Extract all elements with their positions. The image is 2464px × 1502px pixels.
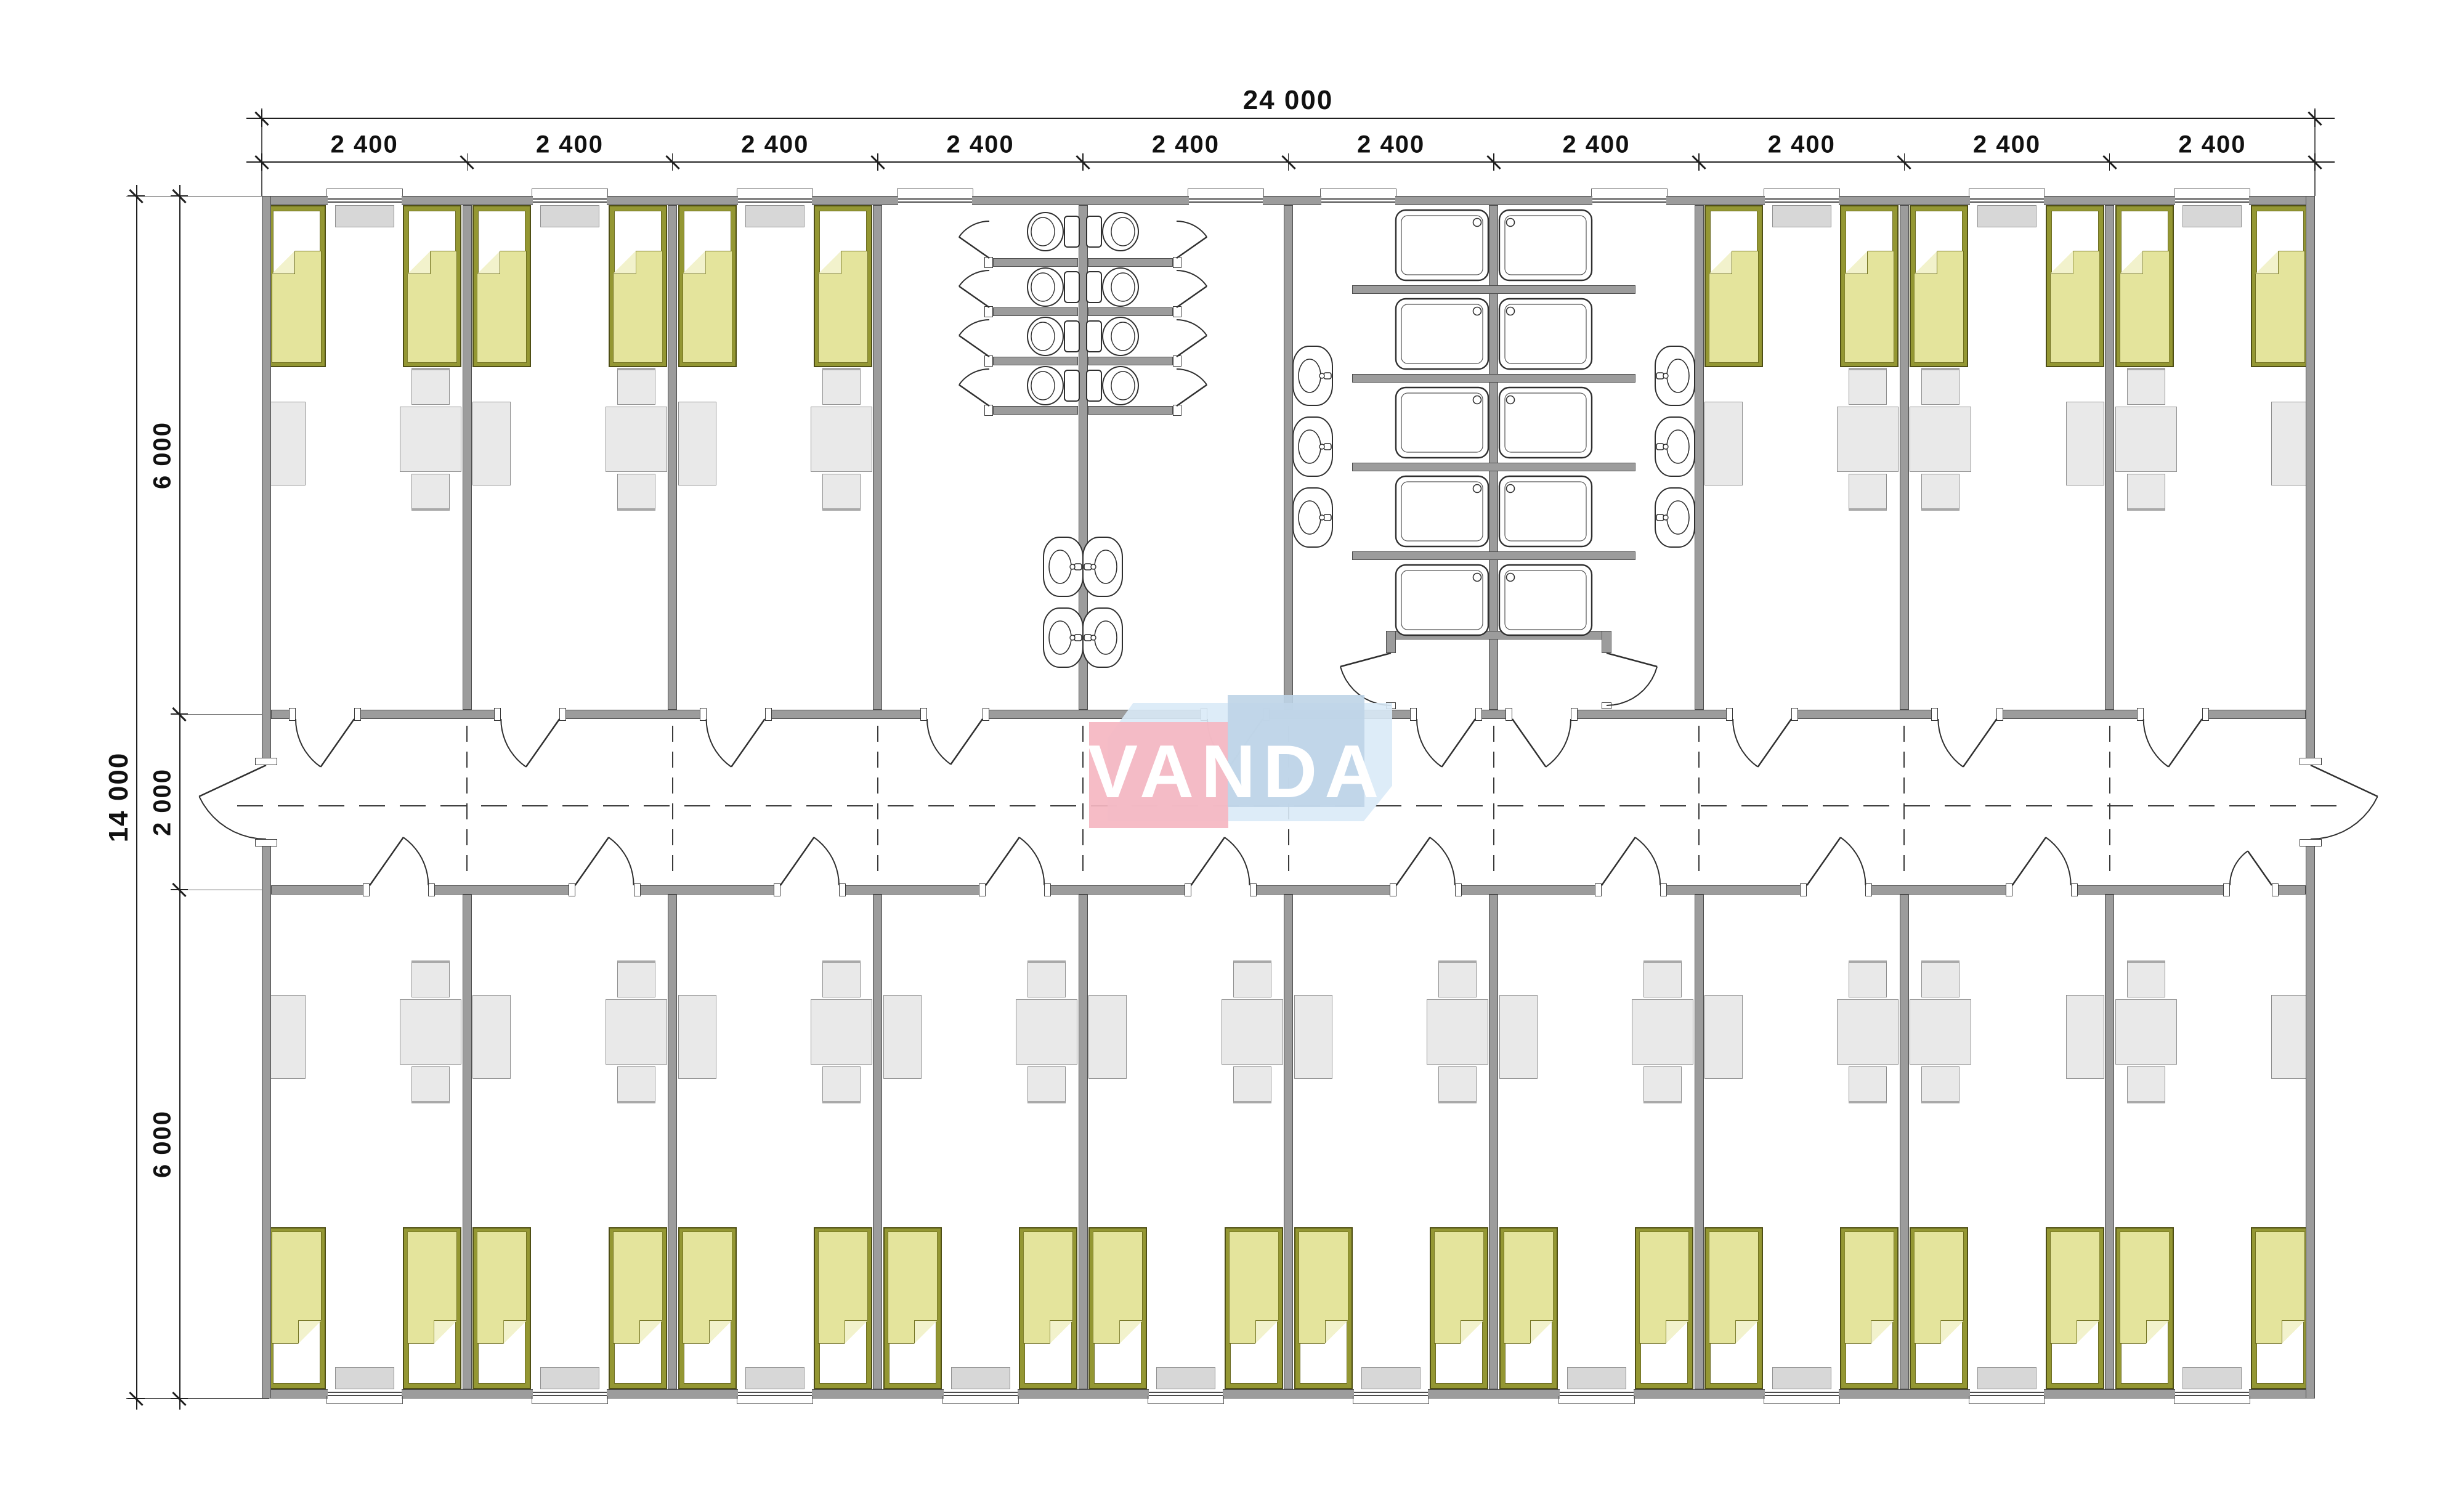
shower-drain-left-1 xyxy=(1473,307,1481,315)
bedroom-top-door-0-leaf xyxy=(321,719,354,767)
toilet-stall-door-right-2-arc xyxy=(1177,320,1207,336)
bedroom-bottom-door-9-leaf xyxy=(2248,851,2272,885)
toilet-sink-right-0-faucet xyxy=(1084,564,1092,570)
toilet-sink-left-0-faucet xyxy=(1074,564,1082,570)
toilet-door-left-leaf xyxy=(950,719,983,765)
toilet-stall-door-right-1-leaf xyxy=(1177,286,1207,307)
toilet-stall-door-left-0-leaf xyxy=(959,237,989,258)
shower-sink-right-2-tap xyxy=(1663,515,1668,520)
shower-sink-left-0-faucet xyxy=(1324,373,1331,379)
toilet-bowl-right-1 xyxy=(1103,268,1138,306)
bedroom-bottom-door-4-leaf xyxy=(1191,837,1225,885)
bedroom-bottom-door-9-arc xyxy=(2230,851,2248,885)
toilet-bowl-left-3 xyxy=(1027,367,1063,405)
bedroom-bottom-door-6-leaf xyxy=(1602,837,1635,885)
shower-drain-left-0 xyxy=(1473,219,1481,227)
floor-plan-canvas: VANDA 24 000 14 000 6 000 2 000 6 000 2 … xyxy=(0,0,2464,1502)
toilet-stall-door-right-1-arc xyxy=(1177,270,1207,286)
shower-drain-left-4 xyxy=(1473,574,1481,582)
shower-drain-right-1 xyxy=(1507,307,1515,315)
toilet-bowl-left-2 xyxy=(1027,317,1063,355)
bedroom-bottom-door-0-arc xyxy=(403,837,429,885)
bedroom-top-door-9-leaf xyxy=(2168,719,2202,767)
toilet-cistern-right-2 xyxy=(1087,321,1101,352)
bedroom-bottom-door-7-leaf xyxy=(1807,837,1840,885)
toilet-stall-door-left-0-arc xyxy=(959,221,989,237)
toilet-stall-door-right-2-leaf xyxy=(1177,336,1207,357)
toilet-cistern-right-3 xyxy=(1087,370,1101,401)
bedroom-top-door-0-arc xyxy=(296,719,321,767)
shower-door-right-arc xyxy=(1546,719,1571,767)
toilet-sink-right-1-faucet xyxy=(1084,635,1092,641)
toilet-cistern-left-1 xyxy=(1064,272,1079,302)
entrance-door-right-arc xyxy=(2311,797,2378,839)
bedroom-top-door-1-leaf xyxy=(526,719,559,767)
bedroom-bottom-door-3-leaf xyxy=(986,837,1019,885)
toilet-stall-door-right-3-leaf xyxy=(1177,385,1207,406)
toilet-bowl-right-2 xyxy=(1103,317,1138,355)
toilet-stall-door-right-0-leaf xyxy=(1177,237,1207,258)
toilet-cistern-left-0 xyxy=(1064,216,1079,247)
logo-text: VANDA xyxy=(1088,728,1387,814)
bedroom-top-door-8-leaf xyxy=(1963,719,1996,767)
bedroom-bottom-door-8-leaf xyxy=(2012,837,2046,885)
bedroom-top-door-7-arc xyxy=(1733,719,1758,767)
shower-sink-left-0-tap xyxy=(1319,373,1324,378)
bedroom-bottom-door-3-arc xyxy=(1019,837,1045,885)
shower-aisle-door-right-leaf xyxy=(1607,653,1657,667)
shower-sink-right-1-faucet xyxy=(1656,444,1664,450)
bedroom-bottom-door-8-arc xyxy=(2046,837,2071,885)
toilet-sink-right-0-tap xyxy=(1091,564,1096,569)
shower-sink-left-1-faucet xyxy=(1324,444,1331,450)
shower-drain-right-2 xyxy=(1507,396,1515,404)
toilet-bowl-left-1 xyxy=(1027,268,1063,306)
shower-drain-right-0 xyxy=(1507,219,1515,227)
bedroom-bottom-door-0-leaf xyxy=(370,837,403,885)
toilet-bowl-left-0 xyxy=(1027,213,1063,251)
bedroom-top-door-2-leaf xyxy=(731,719,764,767)
toilet-sink-right-1-tap xyxy=(1091,635,1096,640)
toilet-bowl-right-0 xyxy=(1103,213,1138,251)
toilet-sink-left-1-faucet xyxy=(1074,635,1082,641)
toilet-stall-door-right-3-arc xyxy=(1177,369,1207,385)
toilet-stall-door-left-2-arc xyxy=(959,320,989,336)
bedroom-bottom-door-2-arc xyxy=(814,837,839,885)
bedroom-top-door-9-arc xyxy=(2144,719,2169,767)
shower-drain-left-3 xyxy=(1473,485,1481,493)
toilet-cistern-right-0 xyxy=(1087,216,1101,247)
shower-drain-right-3 xyxy=(1507,485,1515,493)
entrance-door-left-leaf xyxy=(199,765,266,797)
toilet-bowl-right-3 xyxy=(1103,367,1138,405)
shower-door-left-leaf xyxy=(1442,719,1475,767)
toilet-stall-door-left-1-arc xyxy=(959,270,989,286)
bedroom-top-door-1-arc xyxy=(501,719,526,767)
toilet-sink-left-1-tap xyxy=(1070,635,1075,640)
shower-aisle-door-left-leaf xyxy=(1340,653,1391,667)
bedroom-top-door-8-arc xyxy=(1938,719,1963,767)
shower-aisle-door-right-arc xyxy=(1607,667,1657,705)
bedroom-top-door-7-leaf xyxy=(1758,719,1791,767)
toilet-stall-door-left-3-leaf xyxy=(959,385,989,406)
bedroom-bottom-door-6-arc xyxy=(1635,837,1661,885)
toilet-cistern-right-1 xyxy=(1087,272,1101,302)
toilet-stall-door-left-2-leaf xyxy=(959,336,989,357)
toilet-cistern-left-2 xyxy=(1064,321,1079,352)
toilet-cistern-left-3 xyxy=(1064,370,1079,401)
toilet-stall-door-left-3-arc xyxy=(959,369,989,385)
shower-sink-left-1-tap xyxy=(1319,444,1324,449)
shower-door-left-arc xyxy=(1417,719,1442,767)
bedroom-bottom-door-2-leaf xyxy=(780,837,814,885)
shower-sink-left-2-faucet xyxy=(1324,514,1331,521)
entrance-door-right-leaf xyxy=(2311,765,2378,797)
shower-sink-right-0-faucet xyxy=(1656,373,1664,379)
bedroom-bottom-door-1-arc xyxy=(609,837,634,885)
bedroom-bottom-door-5-leaf xyxy=(1396,837,1430,885)
bedroom-top-door-2-arc xyxy=(707,719,732,767)
entrance-door-left-arc xyxy=(199,797,266,839)
shower-drain-left-2 xyxy=(1473,396,1481,404)
bedroom-bottom-door-4-arc xyxy=(1225,837,1250,885)
toilet-stall-door-left-1-leaf xyxy=(959,286,989,307)
shower-sink-right-2-faucet xyxy=(1656,514,1664,521)
toilet-stall-door-right-0-arc xyxy=(1177,221,1207,237)
bedroom-bottom-door-7-arc xyxy=(1841,837,1866,885)
shower-sink-right-1-tap xyxy=(1663,444,1668,449)
shower-sink-right-0-tap xyxy=(1663,373,1668,378)
bedroom-bottom-door-5-arc xyxy=(1430,837,1455,885)
toilet-sink-left-0-tap xyxy=(1070,564,1075,569)
shower-sink-left-2-tap xyxy=(1319,515,1324,520)
shower-drain-right-4 xyxy=(1507,574,1515,582)
shower-door-right-leaf xyxy=(1512,719,1546,767)
bedroom-bottom-door-1-leaf xyxy=(575,837,609,885)
toilet-door-left-arc xyxy=(927,719,950,765)
